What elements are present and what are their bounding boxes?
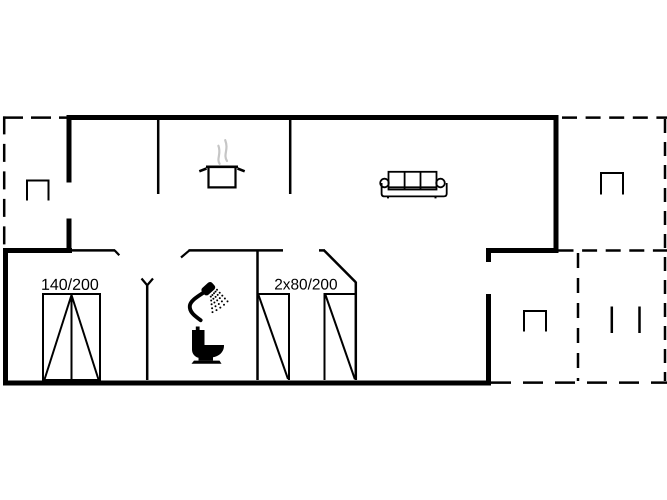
svg-text:2x80/200: 2x80/200 bbox=[274, 276, 337, 293]
svg-text:140/200: 140/200 bbox=[41, 277, 99, 294]
